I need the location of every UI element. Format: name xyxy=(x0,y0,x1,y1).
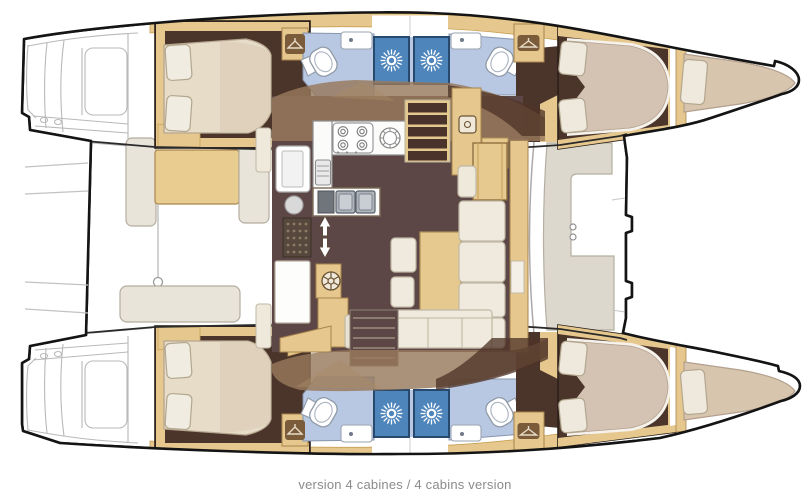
svg-text:version 4 cabines / 4 cabins v: version 4 cabines / 4 cabins version xyxy=(298,477,511,492)
